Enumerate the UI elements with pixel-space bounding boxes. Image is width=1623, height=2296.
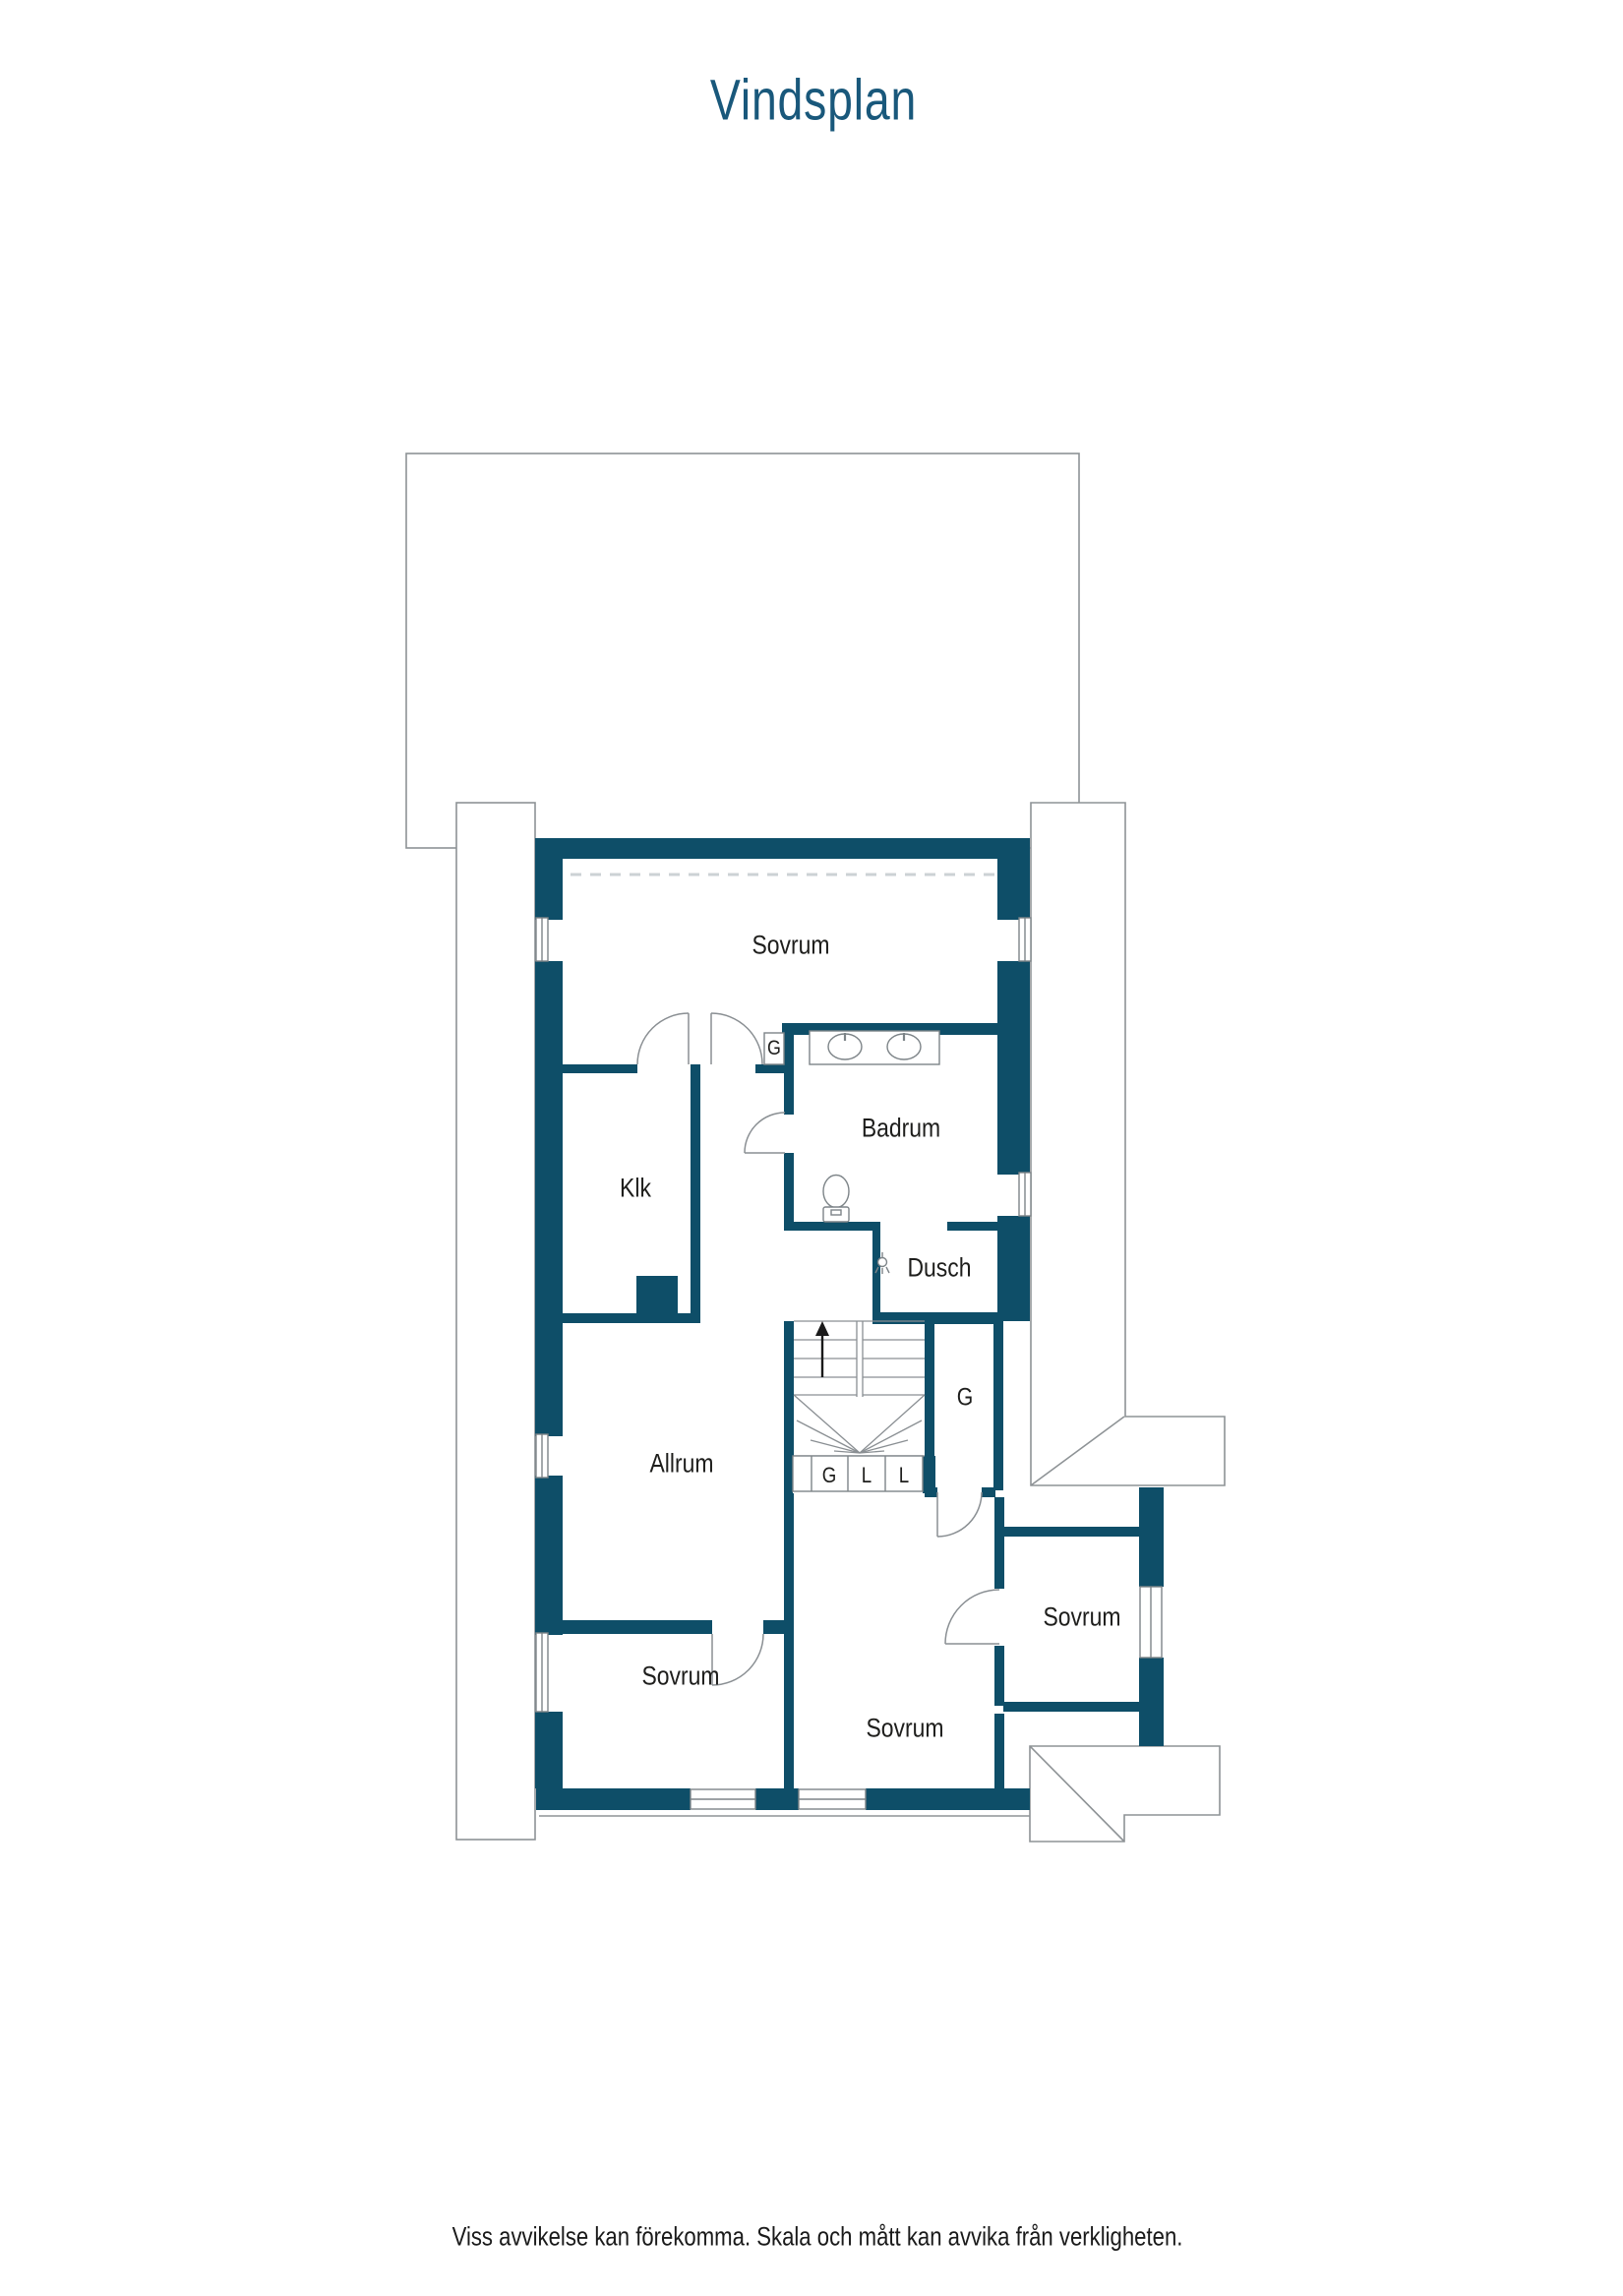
window-sovrum-right [1019,918,1031,961]
wall-gcloset-right [993,1312,1003,1490]
sink-counter [810,1031,939,1064]
room-label-sovrum-top: Sovrum [751,931,829,961]
room-label-allrum: Allrum [649,1449,713,1480]
window-badrum-right [1019,1173,1031,1216]
closet-label-l2: L [899,1463,909,1488]
wall-right-b [997,961,1030,1175]
roof-shape-bottom-right [1030,1746,1220,1842]
room-label-badrum: Badrum [862,1114,940,1144]
wall-top [535,838,1030,859]
wall-midsovrum-left [784,1493,794,1788]
floorplan-page: Vindsplan Sovrum Badrum Klk Dusch Allrum… [0,0,1623,2296]
door-right-sovrum [945,1590,999,1644]
wall-badrum-left-a [784,1035,794,1115]
roof-rect-top [406,453,1079,848]
chimney-block [636,1276,678,1313]
wall-klk-right [691,1064,700,1323]
wall-extension-right-a [1139,1487,1164,1587]
closet-label-g: G [822,1463,837,1488]
roof-column-left [456,803,535,1840]
wall-left-b [535,961,563,1436]
room-label-sovrum-bottom-middle: Sovrum [866,1714,943,1744]
stairs-up-arrow [815,1321,829,1377]
wall-mid-right-divider-a [994,1497,1004,1589]
wall-badrum-bottom-a [784,1222,877,1231]
stairs [794,1321,925,1456]
door-sovrum-klk [637,1013,689,1064]
wall-left-c [535,1476,563,1635]
room-label-klk: Klk [620,1174,651,1204]
window-bottom-2 [799,1789,866,1809]
door-sovrum-hall [711,1013,762,1064]
wall-stair-left [784,1321,794,1456]
window-allrum-left [536,1434,548,1478]
wall-rightsovrum-bottom [1003,1702,1139,1712]
wardrobe-label-stair-g: G [957,1384,974,1413]
wall-badrum-left-b [784,1153,794,1222]
wall-mid-right-divider-c [994,1714,1004,1788]
wall-extension-right-b [1139,1658,1164,1746]
wall-closet-cap-right [923,1456,935,1493]
roof-column-right [1031,803,1225,1485]
toilet [823,1176,849,1223]
wall-right-c [997,1216,1030,1321]
door-stair-wardrobe [937,1492,982,1537]
wall-sovrum-south-left [557,1064,637,1073]
wall-mid-right-divider-b [994,1646,1004,1706]
wall-left-a [535,859,563,920]
wall-badrum-bottom-b [947,1222,997,1231]
room-label-sovrum-bottom-right: Sovrum [1043,1602,1120,1633]
wall-gcloset-bottom-b [982,1487,995,1497]
disclaimer-text: Viss avvikelse kan förekomma. Skala och … [452,2222,1183,2253]
room-label-dusch: Dusch [907,1253,971,1284]
closet-label-l1: L [862,1463,872,1488]
window-sovrum-left [536,918,548,961]
wall-right-a [997,859,1030,920]
floor-plan-canvas [0,0,1623,2296]
wall-klk-bottom [557,1313,700,1323]
wall-dusch-bottom [872,1312,1003,1324]
door-badrum [745,1113,785,1153]
wall-bottom-b [755,1788,799,1810]
wall-allrum-divider-b [763,1620,794,1634]
window-rightsovrum [1140,1587,1162,1658]
window-sovrumbl-left [536,1633,548,1712]
door-sovrum-bottom-left [712,1634,763,1685]
wall-bottom-c [866,1788,1030,1810]
wall-allrum-divider-a [557,1620,712,1634]
wall-sovrum-south-right [755,1064,784,1073]
wardrobe-label-hall-g: G [767,1037,781,1060]
wall-corridor-bottom [1003,1527,1139,1537]
page-title: Vindsplan [710,68,917,134]
room-label-sovrum-bottom-left: Sovrum [641,1662,719,1692]
wall-closet-cap-left [784,1456,793,1493]
wall-left-d [535,1712,563,1788]
window-bottom-1 [691,1789,755,1809]
roof-outline [406,453,1225,1842]
wall-bottom-a [536,1788,691,1810]
